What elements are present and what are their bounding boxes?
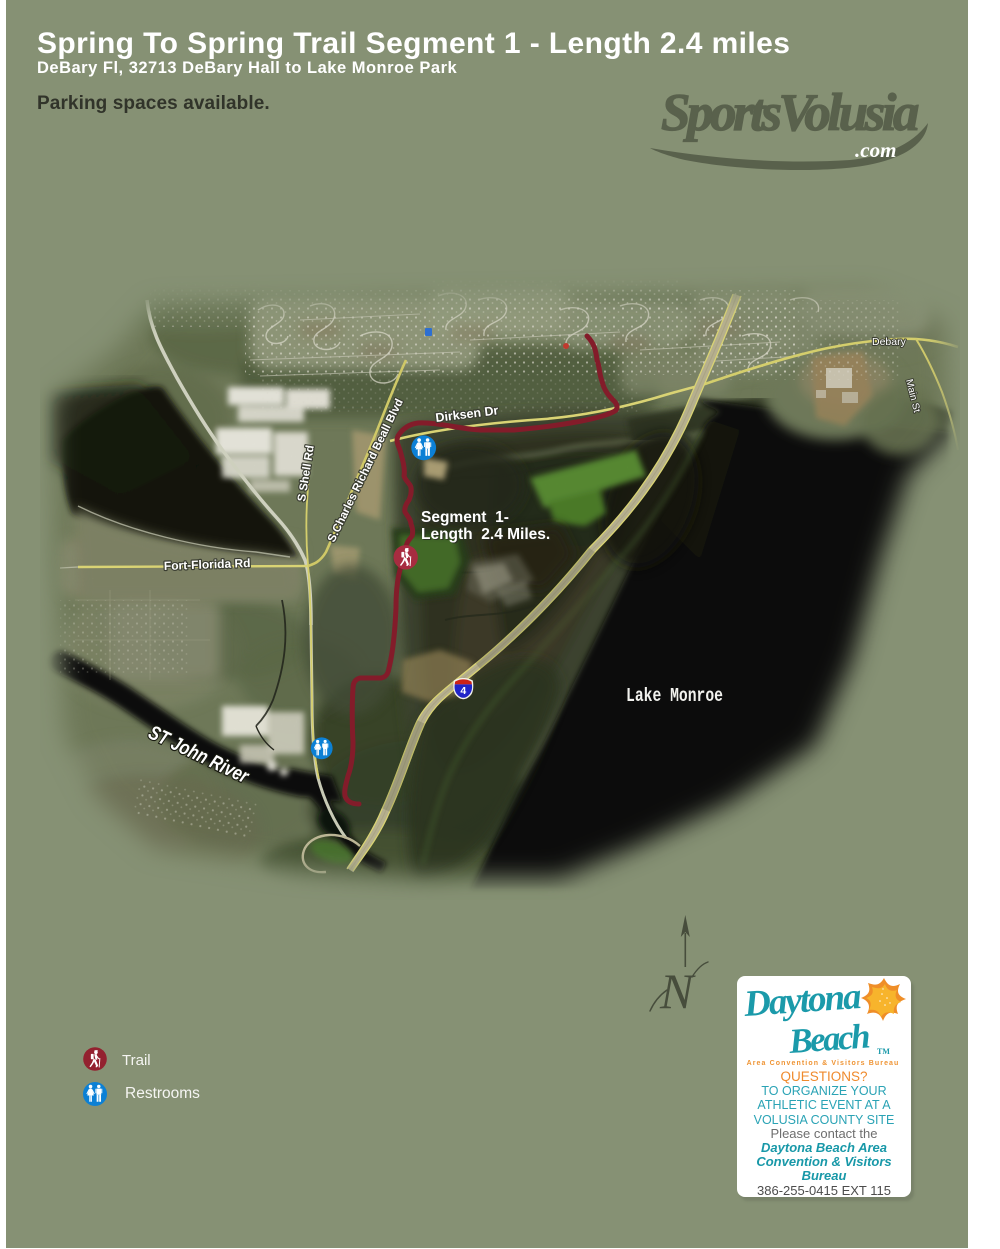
svg-text:TM: TM	[877, 1047, 890, 1056]
svg-text:Segment 1-: Segment 1-	[421, 509, 509, 526]
svg-text:Lake Monroe: Lake Monroe	[626, 685, 723, 707]
svg-text:Debary: Debary	[872, 336, 907, 348]
svg-text:4: 4	[460, 685, 466, 697]
svg-text:Length 2.4 Miles.: Length 2.4 Miles.	[421, 526, 550, 543]
svg-text:Beach: Beach	[787, 1017, 870, 1062]
svg-text:Area Convention & Visitors Bur: Area Convention & Visitors Bureau	[747, 1060, 900, 1067]
svg-text:SportsVolusia: SportsVolusia	[661, 84, 919, 142]
svg-text:.com: .com	[855, 138, 896, 162]
